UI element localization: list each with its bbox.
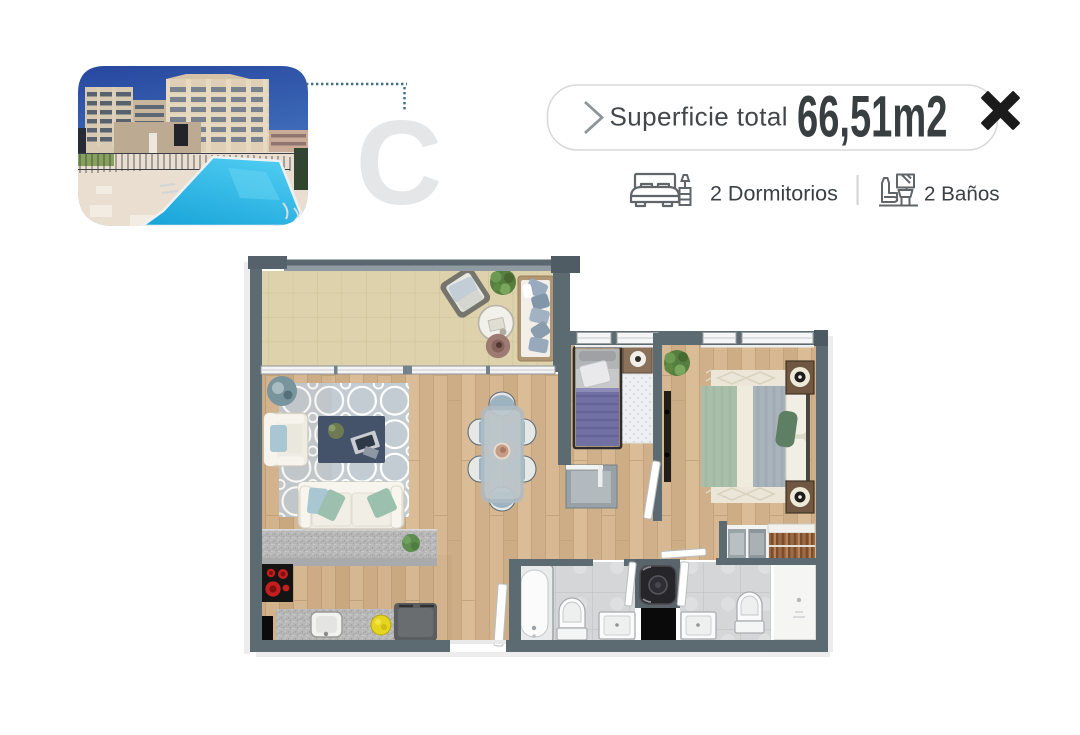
svg-text:66,51m2: 66,51m2 bbox=[797, 86, 947, 150]
svg-text:C: C bbox=[356, 96, 443, 230]
svg-text:2 Dormitorios: 2 Dormitorios bbox=[710, 182, 838, 206]
svg-text:Superficie total: Superficie total bbox=[610, 102, 788, 132]
svg-text:2 Baños: 2 Baños bbox=[924, 183, 1000, 206]
